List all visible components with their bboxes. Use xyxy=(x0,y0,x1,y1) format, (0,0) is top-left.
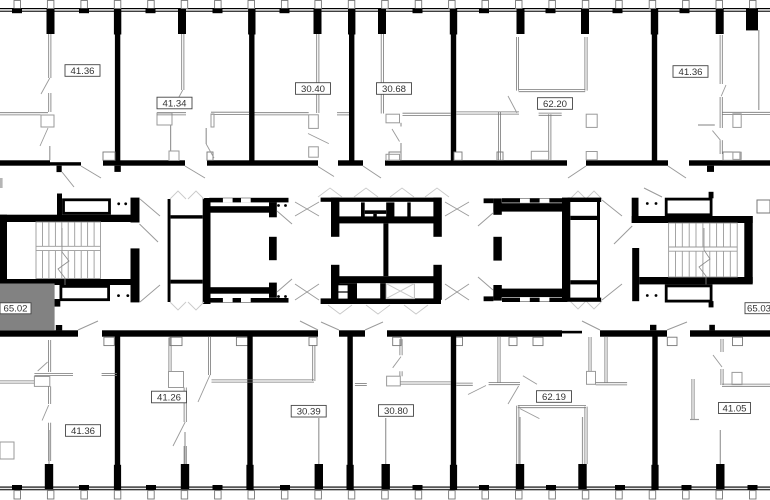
svg-text:41.36: 41.36 xyxy=(678,67,702,78)
svg-text:41.36: 41.36 xyxy=(71,426,95,437)
svg-text:30.80: 30.80 xyxy=(384,406,408,417)
svg-text:41.05: 41.05 xyxy=(722,403,746,414)
svg-text:41.26: 41.26 xyxy=(157,392,181,403)
svg-text:41.36: 41.36 xyxy=(70,66,94,77)
svg-text:41.34: 41.34 xyxy=(162,98,187,109)
svg-text:62.19: 62.19 xyxy=(542,392,566,403)
svg-text:30.40: 30.40 xyxy=(301,84,325,95)
svg-text:30.68: 30.68 xyxy=(382,84,406,95)
svg-text:65.03: 65.03 xyxy=(747,304,770,315)
svg-text:62.20: 62.20 xyxy=(543,99,567,110)
svg-text:30.39: 30.39 xyxy=(297,407,321,418)
svg-text:65.02: 65.02 xyxy=(3,304,27,315)
